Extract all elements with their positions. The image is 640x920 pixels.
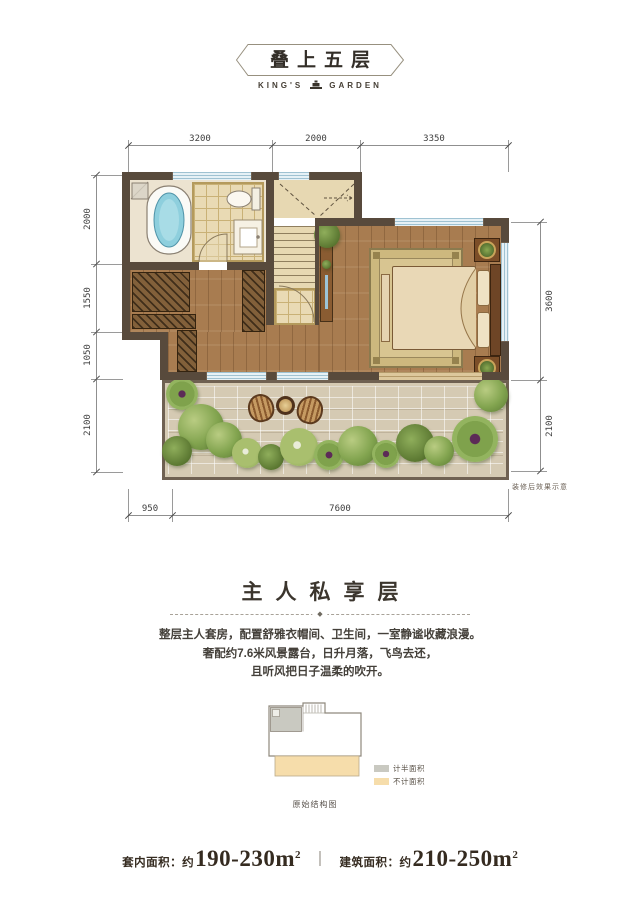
paragraph-line: 且听风把日子温柔的吹开。 (0, 663, 640, 682)
corridor-floor (266, 325, 319, 372)
wall (122, 172, 130, 340)
dimension-line-bottom: 950 7600 (128, 515, 509, 516)
brand-left-text: KING'S (258, 81, 303, 90)
wall (482, 372, 509, 380)
indoor-area-value: 190-230m (195, 846, 295, 872)
indoor-area-label: 套内面积：约 (122, 854, 194, 870)
dim-label: 2000 (83, 208, 93, 230)
dimension-line-left: 2000 1550 1050 2100 (96, 175, 97, 473)
bed-bench (381, 274, 390, 342)
terrace-table-top (279, 399, 292, 412)
legend-row-excluded-area: 不计面积 (374, 776, 425, 787)
plant (474, 378, 508, 412)
wall (266, 172, 274, 270)
rug-corner (452, 252, 459, 259)
wardrobe (132, 272, 190, 312)
wall (315, 218, 394, 226)
plant (162, 436, 192, 466)
bed-headboard (490, 264, 501, 356)
paragraph-line: 整层主人套房，配置舒雅衣帽间、卫生间，一室静谧收藏浪漫。 (0, 626, 640, 645)
dim-label: 950 (142, 504, 158, 514)
dim-label: 3350 (423, 134, 445, 144)
stair-lower-landing (274, 288, 316, 325)
brochure-page: 叠上五层 KING'S GARDEN (0, 0, 640, 920)
rug-corner (373, 357, 380, 364)
brand-right-text: GARDEN (329, 81, 382, 90)
dim-label: 1050 (83, 344, 93, 366)
plant (280, 428, 318, 466)
rug-corner (452, 357, 459, 364)
brand-line: KING'S GARDEN (0, 80, 640, 90)
terrace-window (276, 372, 329, 380)
plant (338, 426, 378, 466)
legend-swatch-gray (374, 765, 389, 772)
square-sup: 2 (295, 849, 301, 861)
terrace-window (206, 372, 267, 380)
wall (267, 372, 276, 380)
window (278, 172, 310, 180)
section-title: 主人私享层 (0, 576, 640, 606)
window (501, 242, 509, 342)
bathroom-tile-zone (192, 182, 264, 262)
dim-label: 3200 (189, 134, 211, 144)
nightstand (474, 238, 500, 262)
description-paragraph: 整层主人套房，配置舒雅衣帽间、卫生间，一室静谧收藏浪漫。 奢配约7.6米风景露台… (0, 626, 640, 682)
indoor-plant-small (322, 260, 331, 269)
stair-treads (274, 226, 316, 288)
pillow (477, 312, 490, 348)
structure-diagram (265, 700, 365, 788)
wardrobe (242, 270, 265, 332)
page-title: 叠上五层 (236, 44, 404, 76)
plant (424, 436, 454, 466)
legend-label: 计半面积 (393, 763, 425, 774)
terrace-table (276, 396, 295, 415)
wall (130, 262, 199, 270)
dim-label: 2000 (305, 134, 327, 144)
render-disclaimer: 装修后效果示意 (494, 482, 568, 492)
dim-label: 1550 (83, 287, 93, 309)
structure-diagram-caption: 原始结构图 (257, 799, 373, 810)
terrace-sliding-door (379, 372, 482, 380)
dimension-line-top: 3200 2000 3350 (128, 145, 509, 146)
wall (315, 226, 319, 325)
divider-ornament-icon: ◆ (312, 610, 327, 619)
brand-logo-icon (309, 80, 323, 90)
excluded-area-zone (275, 756, 359, 776)
title-banner: 叠上五层 (236, 44, 404, 76)
area-divider: ｜ (312, 848, 327, 869)
area-summary: 套内面积：约190-230m2 ｜ 建筑面积：约210-250m2 (0, 846, 640, 872)
stair-landing (274, 180, 354, 218)
square-sup: 2 (512, 849, 518, 861)
wardrobe (132, 314, 196, 329)
section-divider: ◆ (170, 614, 470, 615)
dimension-line-right: 3600 2100 (540, 222, 541, 472)
wardrobe (177, 330, 197, 372)
paragraph-line: 奢配约7.6米风景露台，日升月落，飞鸟去还， (0, 645, 640, 664)
plant (452, 416, 498, 462)
legend-row-half-area: 计半面积 (374, 763, 425, 774)
rug-corner (373, 252, 380, 259)
dim-label: 2100 (83, 414, 93, 436)
legend-swatch-tan (374, 778, 389, 785)
dim-label: 3600 (545, 290, 555, 312)
wall (266, 270, 274, 325)
nightstand-plant (478, 241, 496, 259)
dim-label: 7600 (329, 504, 351, 514)
console-mirror (325, 275, 328, 309)
gross-area-value: 210-250m (413, 846, 513, 872)
structure-corner (273, 710, 280, 717)
pillow (477, 270, 490, 306)
bed (392, 266, 476, 350)
gross-area-label: 建筑面积：约 (340, 854, 412, 870)
wall (160, 372, 206, 380)
structure-diagram-drawing (265, 700, 365, 788)
wall (501, 218, 509, 242)
window (172, 172, 252, 180)
dim-label: 2100 (545, 415, 555, 437)
legend-label: 不计面积 (393, 776, 425, 787)
floor-plan (122, 172, 518, 488)
window (394, 218, 484, 226)
wall (329, 372, 379, 380)
